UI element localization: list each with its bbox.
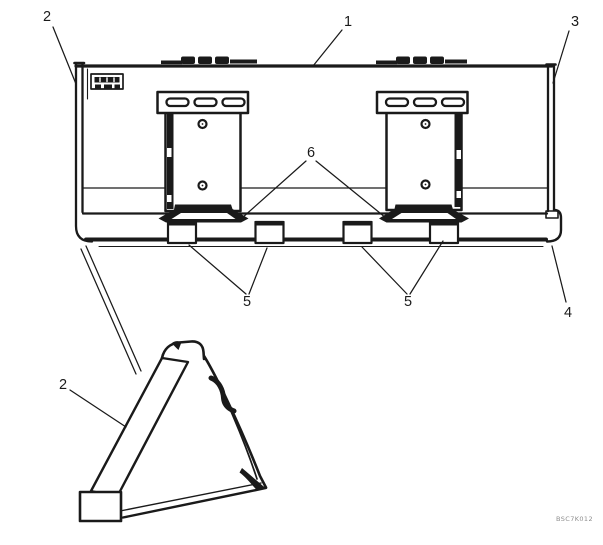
callout-5-right: 5 xyxy=(404,295,412,310)
bracket-top-plate-right xyxy=(377,92,468,113)
bottom-tab-3 xyxy=(343,221,373,243)
drawing-code: BSC7K012 xyxy=(556,516,593,523)
corner-shoe-right xyxy=(547,210,561,242)
mounting-bracket-right xyxy=(377,92,469,223)
bucket-front-view xyxy=(75,57,562,247)
top-gussets-left xyxy=(161,57,257,65)
leader-2-side xyxy=(70,390,126,427)
leader-lines xyxy=(53,27,569,427)
leader-6-right xyxy=(316,161,386,218)
leader-5L-b xyxy=(249,248,267,294)
callout-6: 6 xyxy=(307,146,315,161)
projection-line-b xyxy=(86,246,141,371)
leader-5R-a xyxy=(362,247,407,294)
side-foot-block xyxy=(80,492,121,521)
side-plate-left xyxy=(75,63,93,242)
callout-2-side: 2 xyxy=(59,378,67,393)
callout-1: 1 xyxy=(344,15,352,30)
callout-3: 3 xyxy=(571,15,579,30)
side-curl-notch xyxy=(172,341,181,350)
side-plate-right xyxy=(546,65,561,242)
leader-1 xyxy=(313,30,342,66)
bucket-side-view xyxy=(80,341,266,521)
parts-diagram: 1 2 3 4 5 5 6 2 BSC7K012 xyxy=(0,0,603,545)
callout-5-left: 5 xyxy=(243,295,251,310)
leader-2-top xyxy=(53,27,76,84)
bracket-plate-left xyxy=(166,112,241,211)
leader-5L-a xyxy=(189,245,246,294)
bracket-top-plate-left xyxy=(158,92,249,113)
projection-line-a xyxy=(81,249,136,374)
side-top-curl xyxy=(162,341,204,359)
side-cutting-edge xyxy=(123,488,266,518)
callout-2-top: 2 xyxy=(43,10,51,25)
leader-4 xyxy=(552,246,566,302)
callout-4: 4 xyxy=(564,306,572,321)
serial-plate xyxy=(91,74,123,89)
top-gussets-right xyxy=(376,57,467,65)
leader-3 xyxy=(553,31,569,83)
side-back-plate-band xyxy=(91,358,188,497)
side-cutting-edge-inner xyxy=(120,483,261,511)
bottom-tab-2 xyxy=(255,221,285,243)
bottom-tab-1 xyxy=(167,221,197,243)
mounting-bracket-left xyxy=(158,92,249,223)
leader-6-left xyxy=(242,161,306,218)
bottom-tab-4 xyxy=(429,221,459,243)
diagram-artwork xyxy=(0,0,603,545)
leader-5R-b xyxy=(410,241,443,294)
